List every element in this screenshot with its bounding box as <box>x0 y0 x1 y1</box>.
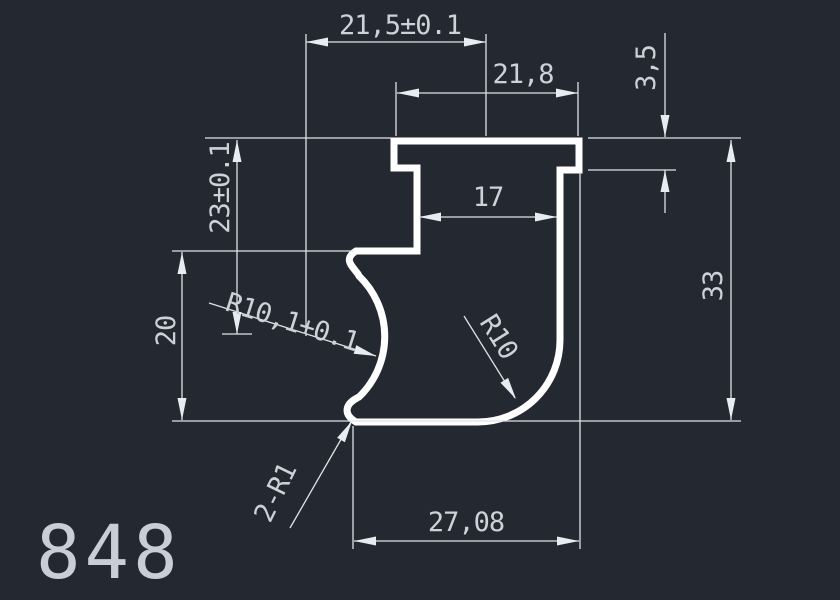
arrow-17-right <box>535 213 557 222</box>
part-number-label: 848 <box>36 510 182 596</box>
arrow-3-5-down <box>661 115 670 137</box>
dimension-lines <box>172 33 741 549</box>
arrow-33-up <box>727 140 736 162</box>
arrow-leader-r10 <box>501 378 517 399</box>
profile-outline <box>347 141 579 422</box>
arrow-leader-2-r1 <box>337 421 352 442</box>
dim-label-bulge-height: 20 <box>151 316 182 347</box>
arrow-21-8-right <box>556 89 578 98</box>
arrow-leader-r10-1 <box>354 345 376 356</box>
arrow-27-08-right <box>557 537 579 546</box>
dim-label-left-radius: R10,1+0.1 <box>222 287 362 358</box>
arrow-20-down <box>178 398 187 420</box>
arrow-21-5-right <box>464 38 486 47</box>
arrow-27-08-left <box>354 537 376 546</box>
arrow-17-left <box>419 213 441 222</box>
arrow-20-up <box>178 252 187 274</box>
dimension-labels: 21,5±0.1 21,8 3,5 17 33 23±0.1 20 R10,1+… <box>151 10 729 538</box>
arrow-21-5-left <box>306 38 328 47</box>
arrow-3-5-up <box>661 170 670 192</box>
dim-label-inner-width: 17 <box>473 182 504 213</box>
dim-label-total-height: 33 <box>698 271 729 302</box>
dim-label-bottom-width: 27,08 <box>428 507 504 538</box>
dim-label-top-width: 21,5±0.1 <box>339 10 461 41</box>
dim-label-left-height: 23±0.1 <box>205 142 236 234</box>
dim-label-flange-thickness: 3,5 <box>631 45 662 91</box>
dim-label-cap-width: 21,8 <box>492 59 553 90</box>
cad-drawing-canvas: 21,5±0.1 21,8 3,5 17 33 23±0.1 20 R10,1+… <box>0 0 840 600</box>
arrow-33-down <box>727 398 736 420</box>
dimension-arrows <box>178 38 736 546</box>
dim-label-notch-radii: 2-R1 <box>248 459 303 527</box>
drawing-svg: 21,5±0.1 21,8 3,5 17 33 23±0.1 20 R10,1+… <box>0 0 840 600</box>
arrow-21-8-left <box>397 89 419 98</box>
dim-label-bottom-radius: R10 <box>473 309 524 364</box>
